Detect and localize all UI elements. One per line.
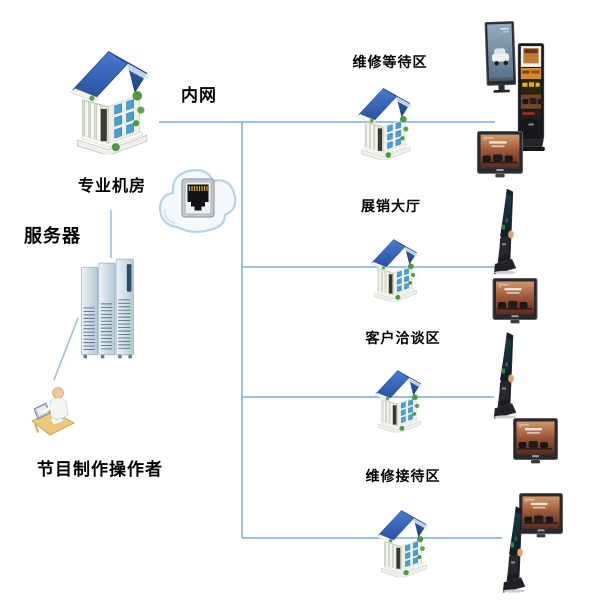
server-rack-icon [80,257,138,363]
zone-label-exhibition-hall: 展销大厅 [339,199,443,215]
zone-label-maintenance-reception: 维修接待区 [351,469,455,485]
zone-building-icon-2 [369,224,421,310]
wall-display-icon-1 [477,131,523,178]
zone-building-icon-3 [373,354,425,442]
wall-display-icon-3 [513,418,558,464]
cloud-network-ethernet-port-icon [155,147,241,241]
intranet-label: 内网 [172,87,226,107]
zone-label-customer-negotiation: 客户洽谈区 [351,331,455,347]
server-room-building-icon [68,34,154,160]
angled-signage-kiosk-icon-3 [501,506,527,593]
operator-at-desk-icon [28,374,76,440]
zone-building-icon-4 [375,494,431,586]
wall-display-icon-2 [492,278,538,324]
angled-signage-kiosk-icon-2 [492,332,518,419]
server-label: 服务器 [24,227,94,248]
portrait-monitor-icon [484,20,518,94]
operator-label: 节目制作操作者 [34,461,166,481]
server-to-operator-line [54,318,78,380]
zone-building-icon-1 [355,79,415,161]
network-topology-diagram: 专业机房 服务器 节目制作操作者 内网 维修等待区 展销大厅 客户洽谈区 维修接… [0,0,600,600]
server-room-label: 专业机房 [62,177,162,195]
angled-signage-kiosk-icon-1 [492,189,518,274]
zone-label-maintenance-waiting: 维修等待区 [338,55,442,71]
